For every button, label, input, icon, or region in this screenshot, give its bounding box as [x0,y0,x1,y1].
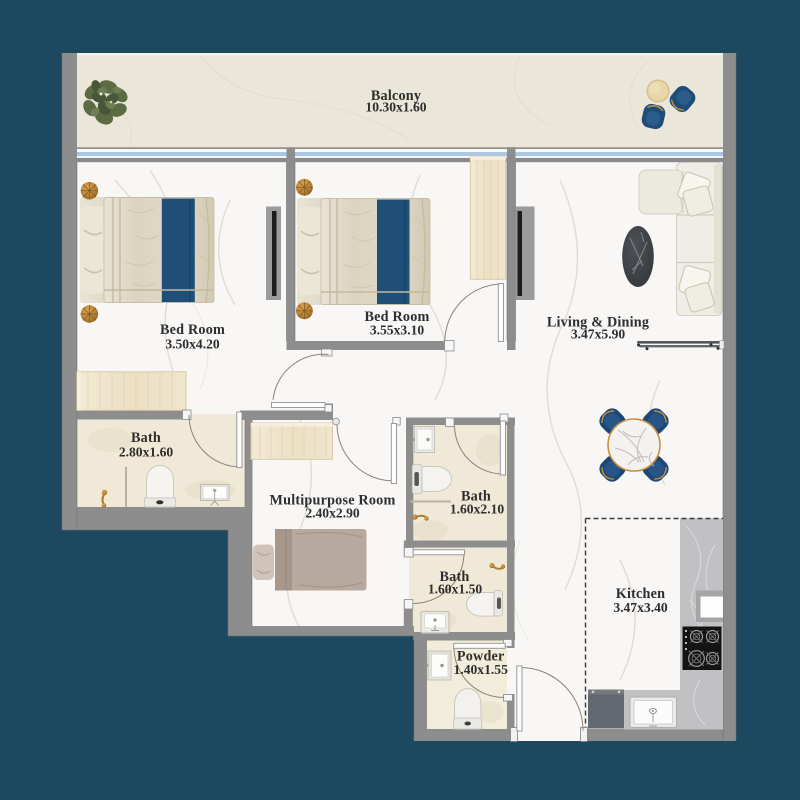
svg-text:3.55x3.10: 3.55x3.10 [370,323,425,338]
svg-text:1.60x2.10: 1.60x2.10 [450,502,505,517]
svg-text:1.40x1.55: 1.40x1.55 [454,662,509,677]
svg-text:3.47x3.40: 3.47x3.40 [613,600,668,615]
svg-text:1.60x1.50: 1.60x1.50 [428,582,483,597]
svg-text:2.40x2.90: 2.40x2.90 [305,506,360,521]
svg-text:2.80x1.60: 2.80x1.60 [119,445,174,460]
svg-text:10.30x1.60: 10.30x1.60 [365,100,426,115]
svg-text:3.50x4.20: 3.50x4.20 [165,337,220,352]
svg-text:3.47x5.90: 3.47x5.90 [571,327,626,342]
